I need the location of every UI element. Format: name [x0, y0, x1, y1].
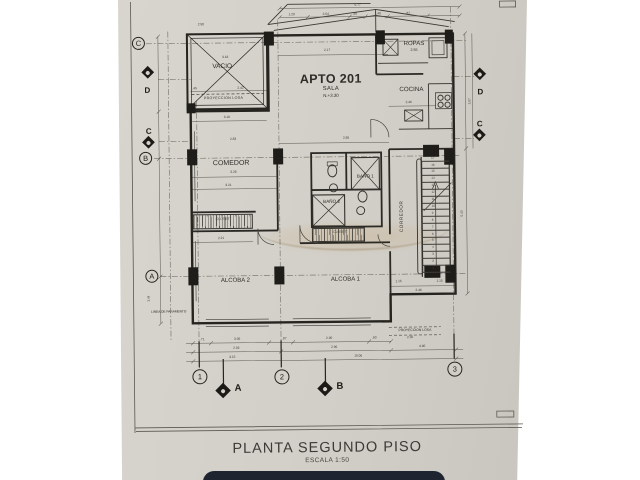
dim: 1.44	[148, 296, 151, 302]
stair-tread	[421, 181, 449, 182]
section-label-A-bottom: A	[235, 384, 242, 394]
dim: 2.85	[343, 137, 349, 140]
grid-marker-2: 2	[274, 369, 289, 384]
stair-tread	[422, 195, 450, 196]
annotation-proyeccion-losa-bottom: PROYECCION LOSA	[391, 329, 439, 333]
section-label-C-right: C	[477, 120, 483, 128]
room-label-cocina: COCINA	[390, 87, 432, 94]
room-label-bano2: BAÑO 2	[316, 200, 348, 205]
grid-marker-1: 1	[192, 369, 207, 384]
stair-number: 1	[432, 267, 434, 270]
stair-tread	[422, 264, 450, 265]
dim: 2.93	[233, 347, 239, 350]
annotation-proyeccion-losa-top: PROYECCION LOSA	[194, 97, 252, 101]
stair-number: 2	[432, 260, 434, 263]
dim: 1.15	[395, 280, 401, 283]
stair-number: 9	[432, 212, 434, 215]
stair-tread	[422, 271, 450, 272]
stair-number: 17	[431, 156, 434, 159]
stair-number: 12	[431, 191, 434, 194]
grid-marker-C-left: C	[132, 37, 145, 50]
room-label-vacio: VACIO	[200, 64, 244, 71]
dim: 3.15	[229, 356, 235, 359]
dim: 5.43	[461, 210, 464, 216]
phone-edge	[203, 471, 445, 480]
stair-number: 10	[432, 205, 435, 208]
dim: 1.48	[375, 12, 381, 15]
stair-number: 15	[431, 170, 434, 173]
dim: 2.58	[198, 23, 204, 26]
dim: .87	[282, 337, 286, 340]
room-label-closet-alcoba1: CLOSET	[324, 231, 356, 235]
dim: 2.42	[237, 87, 243, 90]
dim: 2.64	[323, 12, 329, 15]
stair-number: 3	[432, 253, 434, 256]
stair-tread	[422, 257, 450, 258]
room-label-bano1: BAÑO 1	[349, 174, 381, 179]
dim: 3.28	[230, 171, 236, 174]
dim: 2.83	[230, 138, 236, 141]
stair-tread	[421, 175, 449, 176]
staircase: 1234567891011121314151617	[419, 0, 452, 479]
stair-tread	[421, 168, 449, 169]
ropas-dim: 2.55	[400, 49, 428, 53]
sheet-title: PLANTA SEGUNDO PISO	[197, 440, 457, 457]
annotation-linea-paramento: LINEA DE PARAMENTO	[147, 310, 191, 314]
stair-number: 11	[432, 198, 435, 201]
section-label-B-bottom: B	[336, 382, 343, 392]
room-label-closet-alcoba2: CLOSET	[207, 218, 239, 222]
dim: 2.90	[326, 337, 332, 340]
dim: .45	[192, 87, 196, 90]
dim: 2.17	[324, 49, 330, 52]
dim: 2.46	[406, 101, 412, 104]
stair-tread	[422, 250, 450, 251]
section-label-D-left: D	[144, 87, 150, 95]
apartment-level: N.+3.30	[293, 93, 368, 98]
grid-marker-A-left: A	[145, 270, 158, 283]
room-label-ropas: ROPAS	[400, 41, 428, 47]
stair-tread	[422, 216, 450, 217]
dim: 3.18	[222, 56, 228, 59]
stair-tread	[422, 230, 450, 231]
dim: 4.90	[419, 345, 425, 348]
stair-number: 16	[431, 163, 434, 166]
section-label-D-right: D	[477, 88, 483, 96]
dim: .87	[406, 12, 410, 15]
grid-marker-3: 3	[447, 362, 462, 377]
stair-tread	[422, 223, 450, 224]
dim: 3.18	[224, 116, 230, 119]
stair-number: 13	[431, 184, 434, 187]
dim: 1.15	[436, 280, 442, 283]
dim: 2.02	[407, 336, 413, 339]
dim: .80	[353, 12, 357, 15]
dim: 3.07	[469, 98, 472, 104]
dim: 1.20	[289, 13, 295, 16]
stair-number: 4	[432, 246, 434, 249]
stair-tread	[422, 202, 450, 203]
dim: 3.05	[234, 338, 240, 341]
dim: .71	[200, 338, 204, 341]
plan-drawing: 1234567891011121314151617 VACIO PROYECCI…	[0, 0, 640, 480]
grid-marker-B-left: B	[139, 152, 152, 165]
stair-number: 8	[432, 218, 434, 221]
stair-number: 5	[432, 239, 434, 242]
room-label-alcoba1: ALCOBA 1	[316, 276, 374, 283]
room-label-comedor: COMEDOR	[202, 160, 260, 168]
dim: 2.21	[218, 237, 224, 240]
dim: .60	[372, 336, 376, 339]
room-label-corredor: CORREDOR	[400, 192, 405, 240]
stair-number: 14	[431, 177, 434, 180]
section-label-C-left: C	[146, 128, 152, 136]
dim: 2.96	[331, 346, 337, 349]
dim: 3.21	[225, 184, 231, 187]
dim: 10.06	[354, 355, 362, 358]
stair-tread	[421, 161, 449, 162]
stair-tread	[422, 209, 450, 210]
dim: 2.46	[416, 289, 422, 292]
stair-tread	[422, 237, 450, 238]
room-label-alcoba2: ALCOBA 2	[206, 278, 264, 285]
apartment-title: APTO 201	[293, 72, 368, 85]
stair-tread	[422, 244, 450, 245]
dim-total-top: 6.77	[355, 4, 361, 7]
stair-tread	[421, 188, 449, 189]
blueprint-photo: 1234567891011121314151617 VACIO PROYECCI…	[0, 0, 640, 480]
stair-number: 6	[432, 232, 434, 235]
stair-number: 7	[432, 225, 434, 228]
